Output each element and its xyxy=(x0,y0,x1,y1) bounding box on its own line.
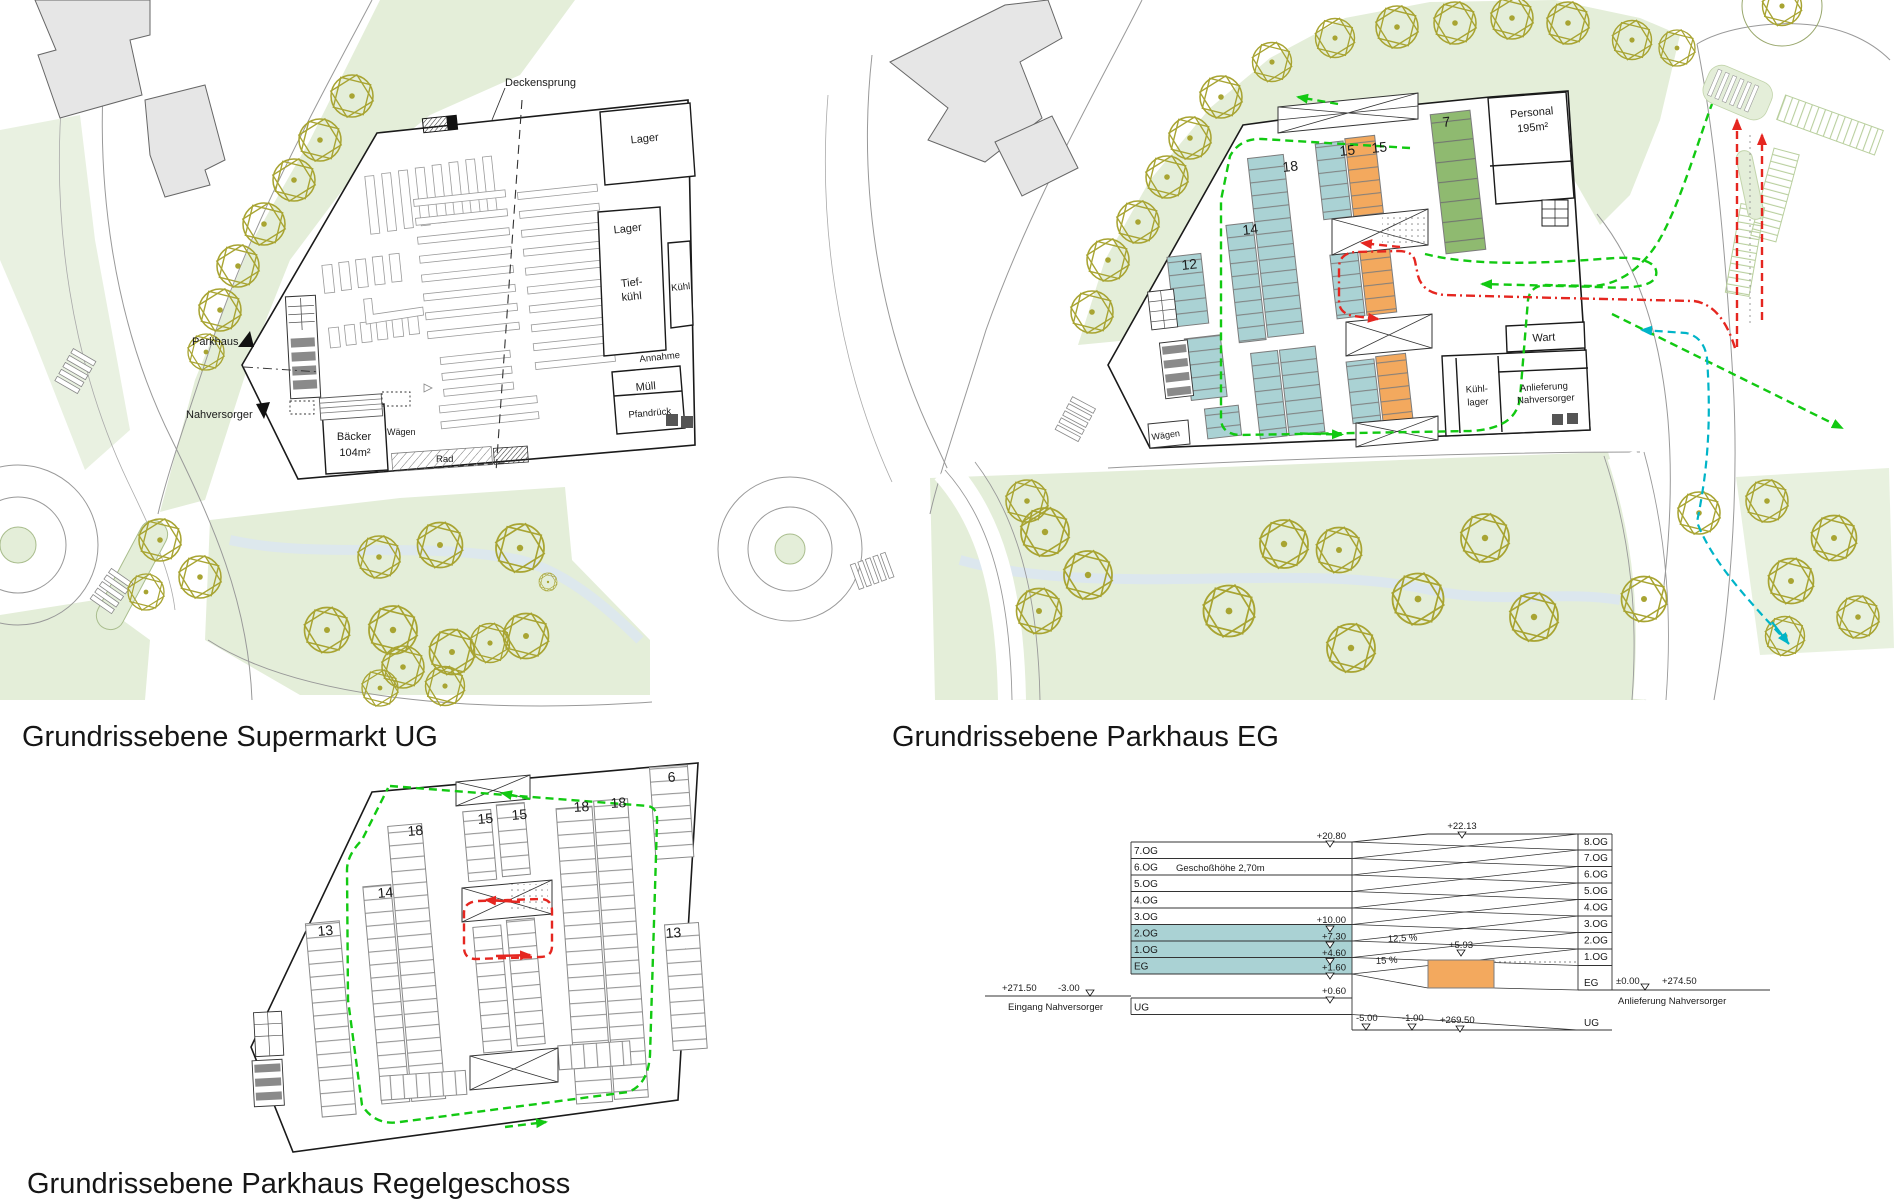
count-6: 6 xyxy=(667,768,676,785)
floor-right-7og: 7.OG xyxy=(1584,853,1608,864)
count-14: 14 xyxy=(1242,220,1259,238)
elev-460: +4.60 xyxy=(1322,948,1346,959)
floor-left-eg: EG xyxy=(1134,962,1149,973)
floor-right-2og: 2.OG xyxy=(1584,936,1608,947)
count-14: 14 xyxy=(377,884,394,901)
floor-left-2og: 2.OG xyxy=(1134,929,1158,940)
tiefkuehl-label-2: kühl xyxy=(621,290,642,304)
deckensprung-label: Deckensprung xyxy=(505,77,576,89)
floor-right-8og: 8.OG xyxy=(1584,837,1608,848)
geschosshoehe-label: Geschoßhöhe 2,70m xyxy=(1176,863,1265,874)
count-18c: 18 xyxy=(610,794,627,811)
floor-right-6og: 6.OG xyxy=(1584,870,1608,881)
tiefkuehl-label: Tief- xyxy=(620,276,643,290)
section-diagram: 7.OG 6.OG 5.OG 4.OG 3.OG 2.OG 1.OG EG UG… xyxy=(985,821,1770,1032)
left-ground-abs: +271.50 xyxy=(1002,983,1037,994)
count-15b: 15 xyxy=(511,806,528,823)
grade-125: 12,5 % xyxy=(1388,932,1419,945)
bottom-500: -5.00 xyxy=(1356,1013,1378,1024)
floor-left-3og: 3.OG xyxy=(1134,912,1158,923)
count-18a: 18 xyxy=(407,822,424,839)
kuehllager-label-1: Kühl- xyxy=(1466,383,1489,395)
baecker-area-label: 104m² xyxy=(339,447,371,459)
muell-label: Müll xyxy=(635,380,656,394)
regel-building: 6 18 15 15 18 18 14 13 13 xyxy=(250,763,708,1152)
richtung-parkhaus-label: Parkhaus xyxy=(192,336,239,348)
elev-593: +5.93 xyxy=(1449,940,1473,951)
count-15b: 15 xyxy=(1371,138,1388,156)
elev-060: +0.60 xyxy=(1322,986,1346,997)
elev-160: +1.60 xyxy=(1322,963,1346,974)
floor-right-3og: 3.OG xyxy=(1584,919,1608,930)
floor-left-4og: 4.OG xyxy=(1134,896,1158,907)
count-18b: 18 xyxy=(573,798,590,815)
neighbour-buildings-eg xyxy=(890,0,1078,196)
waegen-label: Wägen xyxy=(387,427,416,437)
panel-parkhaus-regelgeschoss: 6 18 15 15 18 18 14 13 13 xyxy=(250,763,708,1152)
floor-right-1og: 1.OG xyxy=(1584,952,1608,963)
panel-parkhaus-eg: 18 15 15 7 14 12 Personal 195m² Wart Küh… xyxy=(718,0,1894,700)
floor-left-ug: UG xyxy=(1134,1003,1149,1014)
section-ramp-orange xyxy=(1428,960,1494,988)
floor-left-1og: 1.OG xyxy=(1134,945,1158,956)
architectural-drawing-sheet: Deckensprung Lager Lager Tief- kühl Kühl… xyxy=(0,0,1894,1200)
count-15a: 15 xyxy=(1339,141,1356,159)
equipment-square xyxy=(681,416,693,428)
escalator-block xyxy=(285,295,320,398)
elev-1000: +10.00 xyxy=(1317,915,1346,926)
elev-2213: +22.13 xyxy=(1447,821,1476,832)
left-ground-rel: -3.00 xyxy=(1058,983,1080,994)
right-ground-null: ±0.00 xyxy=(1616,976,1640,987)
elev-730: +7.30 xyxy=(1322,932,1346,943)
title-supermarkt-ug: Grundrissebene Supermarkt UG xyxy=(22,721,438,753)
title-parkhaus-eg: Grundrissebene Parkhaus EG xyxy=(892,721,1279,753)
count-18: 18 xyxy=(1282,157,1299,175)
canopy xyxy=(319,394,382,420)
anlieferung-section-label: Anlieferung Nahversorger xyxy=(1618,996,1726,1007)
floor-left-6og: 6.OG xyxy=(1134,863,1158,874)
panel-supermarkt-ug: Deckensprung Lager Lager Tief- kühl Kühl… xyxy=(0,0,695,706)
count-15a: 15 xyxy=(477,810,494,827)
elev-2080: +20.80 xyxy=(1317,831,1346,842)
floor-right-eg: EG xyxy=(1584,978,1599,989)
rad-label: Rad xyxy=(436,454,453,465)
title-parkhaus-regelgeschoss: Grundrissebene Parkhaus Regelgeschoss xyxy=(27,1168,570,1200)
plans-svg: Deckensprung Lager Lager Tief- kühl Kühl… xyxy=(0,0,1894,1200)
floor-right-ug: UG xyxy=(1584,1018,1599,1029)
floor-right-4og: 4.OG xyxy=(1584,903,1608,914)
count-13b: 13 xyxy=(665,924,682,941)
bottom-100: -1.00 xyxy=(1402,1013,1424,1024)
floor-left-7og: 7.OG xyxy=(1134,846,1158,857)
floor-left-5og: 5.OG xyxy=(1134,879,1158,890)
kuehllager-label-2: lager xyxy=(1467,396,1489,408)
vent-hatch xyxy=(422,115,457,132)
count-12: 12 xyxy=(1181,255,1198,273)
floor-right-5og: 5.OG xyxy=(1584,886,1608,897)
wart-label: Wart xyxy=(1532,331,1555,344)
richtung-nahversorger-label: Nahversorger xyxy=(186,409,253,421)
section-teal-floors xyxy=(1131,925,1352,975)
baecker-label: Bäcker xyxy=(337,431,372,443)
kuehl-label: Kühl xyxy=(671,281,691,294)
eingang-label: Eingang Nahversorger xyxy=(1008,1002,1103,1013)
count-13a: 13 xyxy=(317,922,334,939)
bottom-26950: +269.50 xyxy=(1440,1015,1475,1026)
right-ground-abs: +274.50 xyxy=(1662,976,1697,987)
grade-15: 15 % xyxy=(1376,955,1399,967)
